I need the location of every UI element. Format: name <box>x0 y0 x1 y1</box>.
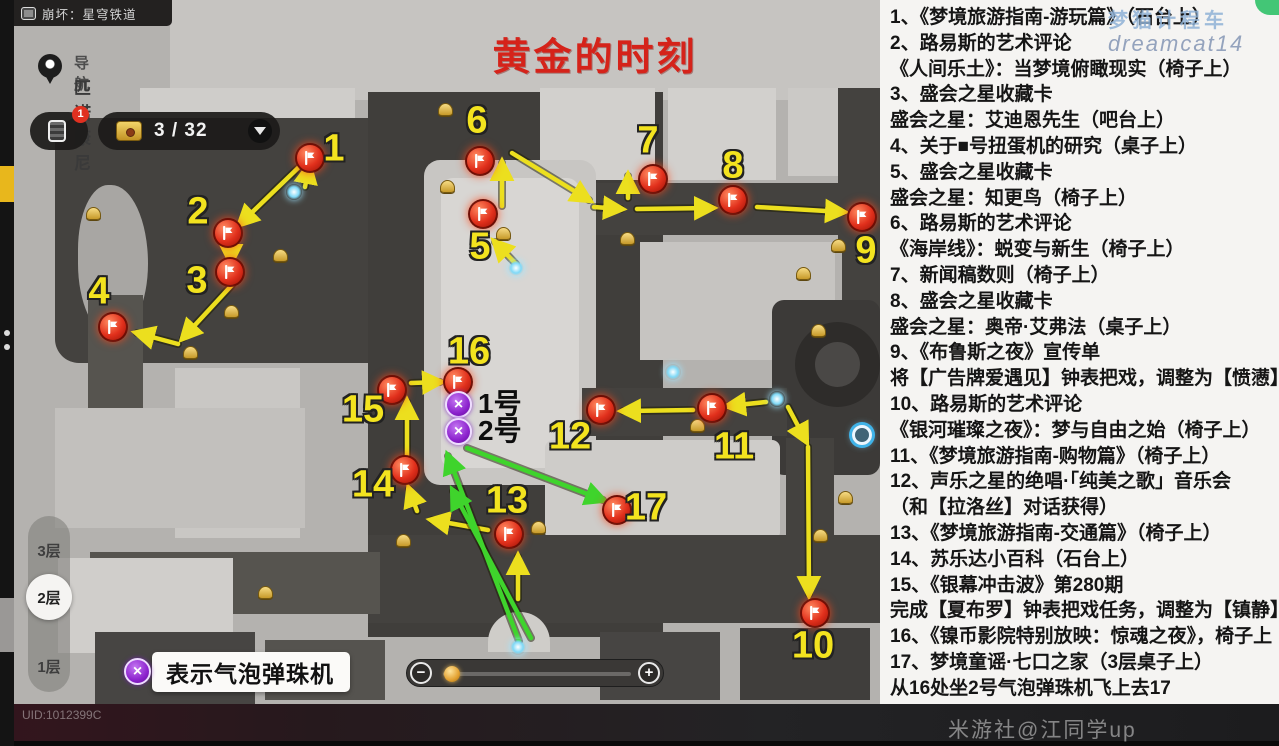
panel-line: 6、路易斯的艺术评论 <box>890 211 1279 237</box>
map-pin-icon <box>38 54 62 78</box>
map-flag-number: 14 <box>352 464 394 507</box>
edge-accent <box>0 598 14 652</box>
guide-title: 黄金的时刻 <box>420 26 770 81</box>
map-flag-11[interactable] <box>697 393 727 423</box>
floor-button-1层[interactable]: 1层 <box>28 656 70 677</box>
bell-collectible-icon <box>496 227 511 240</box>
panel-line: 13、《梦境旅游指南-交通篇》（椅子上） <box>890 521 1279 547</box>
bell-collectible-icon <box>440 180 455 193</box>
map-flag-number: 3 <box>186 260 207 303</box>
map-flag-number: 13 <box>486 480 528 523</box>
pinball-machine-label: 1号 <box>478 390 522 418</box>
map-flag-8[interactable] <box>718 185 748 215</box>
panel-line: 14、苏乐达小百科（石台上） <box>890 547 1279 573</box>
bell-collectible-icon <box>690 419 705 432</box>
map-flag-6[interactable] <box>465 146 495 176</box>
bottom-bar: 米游社@江同学up <box>0 704 1279 746</box>
panel-line: 3、盛会之星收藏卡 <box>890 82 1279 108</box>
map-flag-14[interactable] <box>390 455 420 485</box>
sprite-icon <box>665 364 681 380</box>
teleport-anchor-icon[interactable] <box>852 425 872 445</box>
bell-collectible-icon <box>620 232 635 245</box>
left-edge-strip <box>0 0 14 746</box>
bell-collectible-icon <box>831 239 846 252</box>
map-flag-4[interactable] <box>98 312 128 342</box>
map-flag-1[interactable] <box>295 143 325 173</box>
sprite-icon <box>510 639 526 655</box>
edge-accent <box>4 330 10 336</box>
floor-button-3层[interactable]: 3层 <box>28 540 70 561</box>
bell-collectible-icon <box>258 586 273 599</box>
bell-collectible-icon <box>838 491 853 504</box>
map-flag-9[interactable] <box>847 202 877 232</box>
map-flag-number: 15 <box>342 389 384 432</box>
map-flag-number: 5 <box>469 226 490 269</box>
panel-line: 4、关于■号扭蛋机的研究（桌子上） <box>890 134 1279 160</box>
bell-collectible-icon <box>86 207 101 220</box>
floor-selector: 3层2层1层 <box>28 516 70 692</box>
bell-collectible-icon <box>438 103 453 116</box>
bell-collectible-icon <box>224 305 239 318</box>
zoom-slider[interactable]: − + <box>406 659 664 687</box>
collectibles-panel: 1、《梦境旅游指南-游玩篇》（石台上）2、路易斯的艺术评论《人间乐土》：当梦境俯… <box>880 0 1279 704</box>
panel-line: 《银河璀璨之夜》：梦与自由之始（椅子上） <box>890 418 1279 444</box>
map-flag-2[interactable] <box>213 218 243 248</box>
sprite-icon <box>286 184 302 200</box>
bell-collectible-icon <box>796 267 811 280</box>
bell-collectible-icon <box>183 346 198 359</box>
panel-line: 将【广告牌爱遇见】钟表把戏，调整为【愤懑】 <box>890 366 1279 392</box>
window-titlebar[interactable]: 崩坏：星穹铁道 <box>14 0 172 26</box>
map-flag-10[interactable] <box>800 598 830 628</box>
map-flag-number: 12 <box>549 416 591 459</box>
zoom-slider-track[interactable] <box>443 672 631 676</box>
bell-collectible-icon <box>273 249 288 262</box>
map-flag-number: 11 <box>714 426 754 469</box>
map-flag-number: 10 <box>792 625 834 668</box>
panel-line: 16、《镍币影院特别放映：惊魂之夜》，椅子上 <box>890 624 1279 650</box>
panel-line: 9、《布鲁斯之夜》宣传单 <box>890 340 1279 366</box>
map-flag-number: 6 <box>466 100 487 143</box>
map-flag-3[interactable] <box>215 257 245 287</box>
watermark-line2: dreamcat14 <box>1108 31 1244 57</box>
panel-line: 15、《银幕冲击波》第280期 <box>890 573 1279 599</box>
bell-collectible-icon <box>811 324 826 337</box>
clipboard-icon <box>48 120 66 142</box>
edge-accent <box>0 166 14 202</box>
chevron-down-icon[interactable] <box>248 119 272 143</box>
panel-line: 5、盛会之星收藏卡 <box>890 160 1279 186</box>
panel-line: （和【拉洛丝】对话获得） <box>890 495 1279 521</box>
watermark-top-right: 梦猫计程车 dreamcat14 <box>1108 4 1244 57</box>
sprite-icon <box>769 391 785 407</box>
panel-line: 完成【夏布罗】钟表把戏任务，调整为【镇静】 <box>890 598 1279 624</box>
floor-button-2层[interactable]: 2层 <box>26 574 72 620</box>
bell-collectible-icon <box>531 521 546 534</box>
panel-line: 盛会之星：艾迪恩先生（吧台上） <box>890 108 1279 134</box>
watermark-line1: 梦猫计程车 <box>1108 4 1244 33</box>
chest-counter-value: 3 / 32 <box>154 120 208 142</box>
panel-line: 17、梦境童谣·七口之家（3层桌子上） <box>890 650 1279 676</box>
panel-line: 11、《梦境旅游指南-购物篇》（椅子上） <box>890 444 1279 470</box>
watermark-bottom-right: 米游社@江同学up <box>948 714 1137 744</box>
panel-line: 从16处坐2号气泡弹珠机飞上去17 <box>890 676 1279 702</box>
window-title: 崩坏：星穹铁道 <box>42 4 137 23</box>
panel-line: 8、盛会之星收藏卡 <box>890 289 1279 315</box>
map-flag-7[interactable] <box>638 164 668 194</box>
panel-line: 12、声乐之星的绝唱·「纯美之歌」音乐会 <box>890 469 1279 495</box>
pinball-machine-marker: × <box>445 391 472 418</box>
pinball-machine-marker: × <box>445 418 472 445</box>
panel-line: 10、路易斯的艺术评论 <box>890 392 1279 418</box>
legend-box: 表示气泡弹珠机 <box>152 652 350 692</box>
zoom-out-button[interactable]: − <box>410 662 432 684</box>
bell-collectible-icon <box>813 529 828 542</box>
map-flag-number: 1 <box>323 128 344 171</box>
panel-line: 7、新闻稿数则（椅子上） <box>890 263 1279 289</box>
legend-text: 表示气泡弹珠机 <box>166 655 334 689</box>
uid-text: UID:1012399C <box>22 708 101 722</box>
panel-line: 盛会之星：知更鸟（椅子上） <box>890 186 1279 212</box>
screenshot-root: 1234567891011121314151617×1号×2号 崩坏：星穹铁道 … <box>0 0 1279 746</box>
map-flag-5[interactable] <box>468 199 498 229</box>
chest-counter-dropdown[interactable]: 3 / 32 <box>98 112 280 150</box>
notification-badge: 1 <box>72 106 89 123</box>
map-flag-number: 4 <box>88 271 109 314</box>
zoom-slider-handle[interactable] <box>444 666 460 682</box>
treasure-chest-icon <box>116 121 142 141</box>
map-flag-number: 16 <box>448 331 490 374</box>
legend-pinball-icon: × <box>124 658 151 685</box>
app-icon <box>21 7 36 20</box>
map-flag-number: 8 <box>722 145 743 188</box>
map-flag-number: 9 <box>855 230 876 273</box>
edge-accent <box>4 344 10 350</box>
map-flag-number: 2 <box>187 191 208 234</box>
map-flag-13[interactable] <box>494 519 524 549</box>
tasks-pill-button[interactable]: 1 <box>30 112 88 150</box>
panel-line: 盛会之星：奥帝·艾弗法（桌子上） <box>890 315 1279 341</box>
map-flag-number: 17 <box>625 487 667 530</box>
pinball-machine-label: 2号 <box>478 417 522 445</box>
panel-line: 《海岸线》：蜕变与新生（椅子上） <box>890 237 1279 263</box>
map-flag-number: 7 <box>637 120 658 163</box>
bell-collectible-icon <box>396 534 411 547</box>
panel-line: 《人间乐土》：当梦境俯瞰现实（椅子上） <box>890 57 1279 83</box>
sprite-icon <box>508 260 524 276</box>
zoom-in-button[interactable]: + <box>638 662 660 684</box>
